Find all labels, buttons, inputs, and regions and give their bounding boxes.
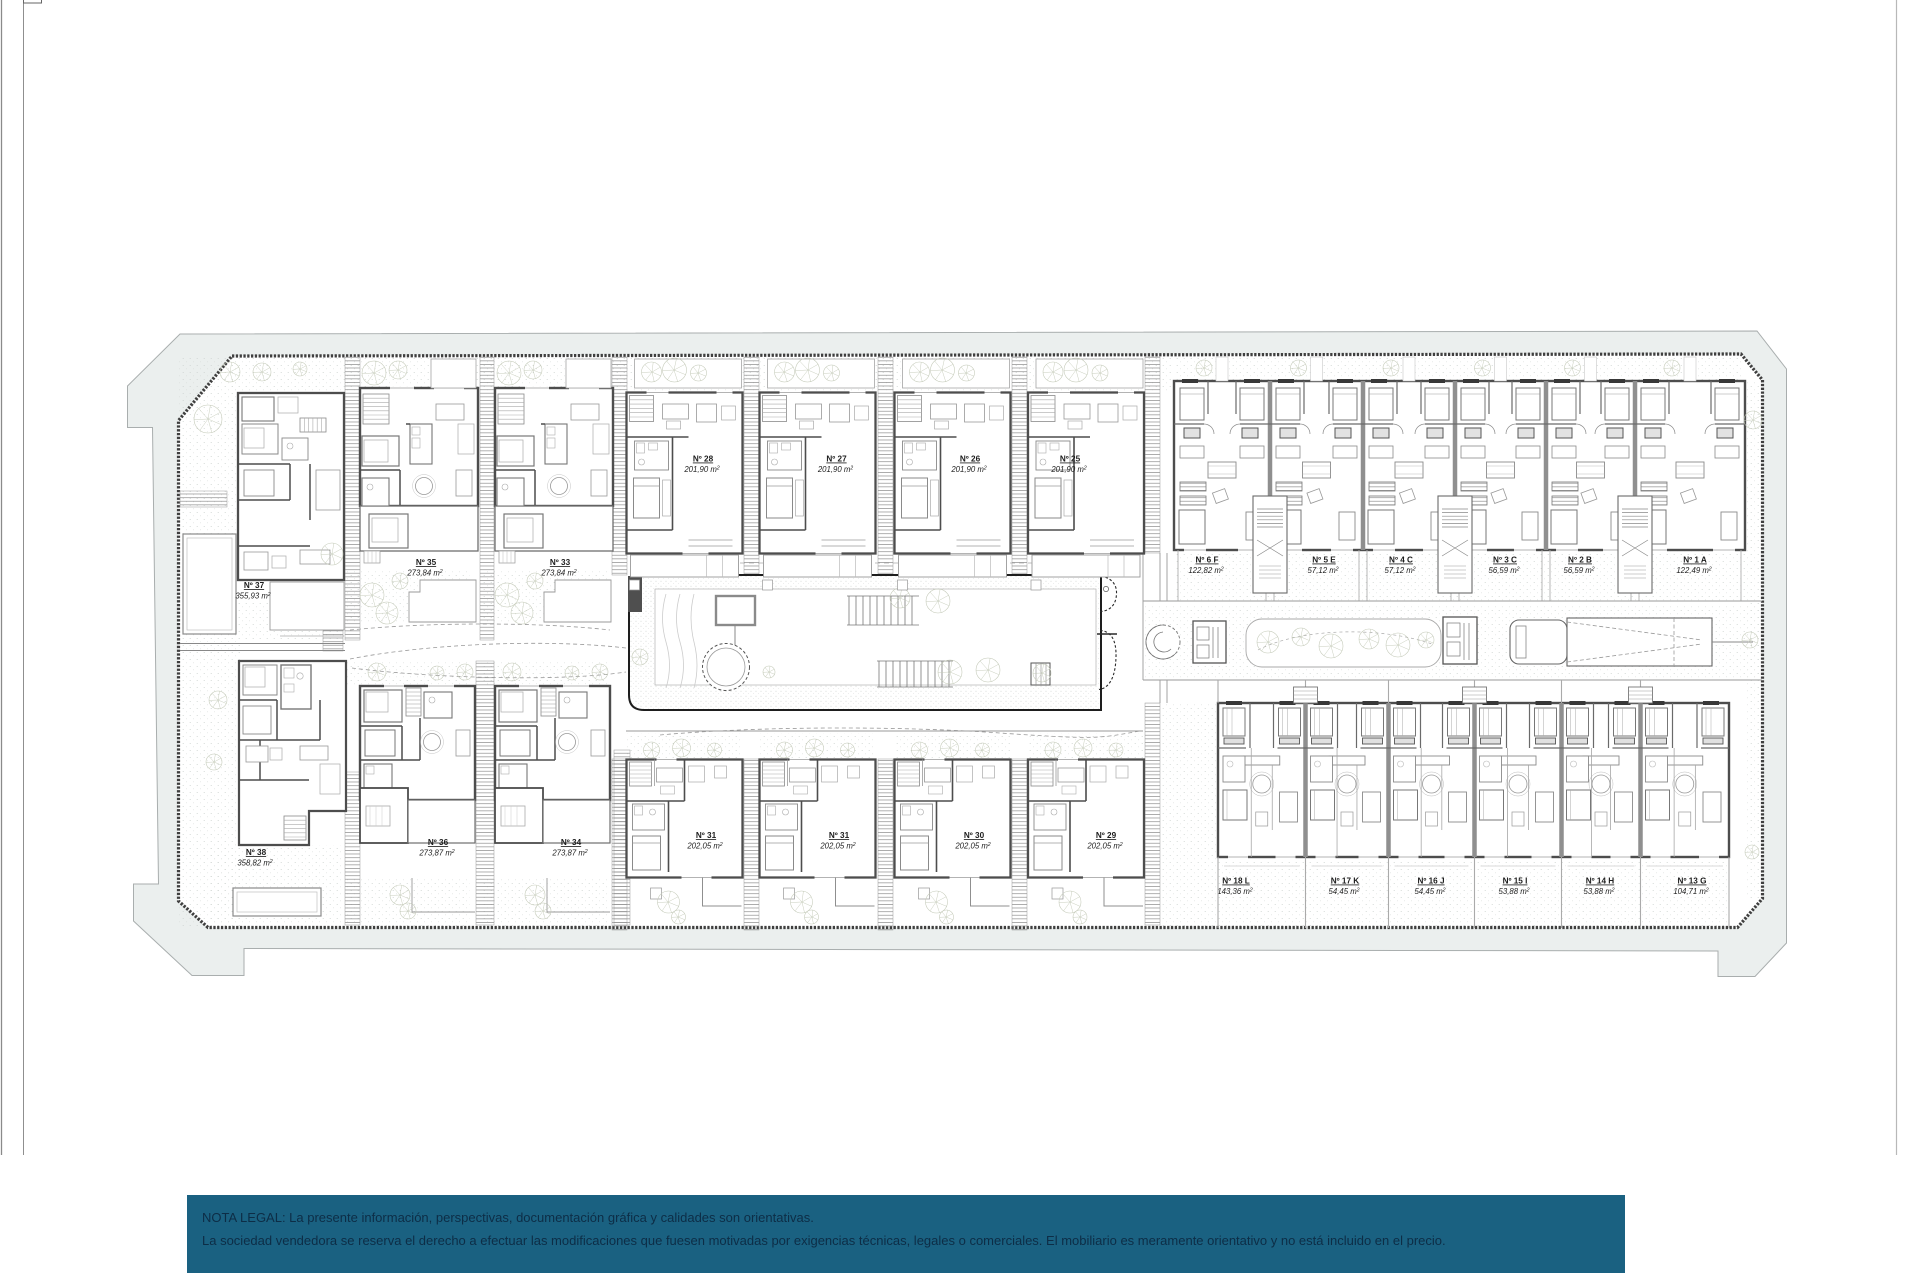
svg-text:202,05 m2: 202,05 m2 (1086, 842, 1123, 851)
svg-text:Nº 15 I: Nº 15 I (1503, 877, 1528, 886)
svg-text:Nº 38: Nº 38 (246, 848, 267, 857)
svg-text:273,87 m2: 273,87 m2 (551, 849, 588, 858)
svg-text:201,90 m2: 201,90 m2 (1050, 465, 1087, 474)
svg-text:273,87 m2: 273,87 m2 (418, 849, 455, 858)
svg-text:143,36 m2: 143,36 m2 (1217, 887, 1253, 896)
svg-text:Nº 37: Nº 37 (244, 581, 265, 590)
svg-text:355,93 m2: 355,93 m2 (235, 592, 271, 601)
svg-text:Nº 4 C: Nº 4 C (1389, 556, 1413, 565)
svg-text:Nº 30: Nº 30 (964, 831, 985, 840)
svg-text:Nº 33: Nº 33 (550, 558, 571, 567)
svg-text:56,59 m2: 56,59 m2 (1564, 566, 1595, 575)
svg-text:Nº 31: Nº 31 (696, 831, 717, 840)
svg-text:NOTA LEGAL: La presente inform: NOTA LEGAL: La presente información, per… (202, 1210, 814, 1225)
svg-text:201,90 m2: 201,90 m2 (950, 465, 987, 474)
svg-text:56,59 m2: 56,59 m2 (1489, 566, 1520, 575)
svg-text:201,90 m2: 201,90 m2 (817, 465, 854, 474)
svg-text:Nº 3 C: Nº 3 C (1493, 556, 1517, 565)
svg-text:Nº 1 A: Nº 1 A (1683, 556, 1707, 565)
svg-text:Nº 25: Nº 25 (1060, 455, 1081, 464)
svg-text:Nº 16 J: Nº 16 J (1417, 877, 1444, 886)
svg-text:Nº 13 G: Nº 13 G (1678, 877, 1707, 886)
svg-text:104,71 m2: 104,71 m2 (1673, 887, 1709, 896)
svg-text:Nº 34: Nº 34 (561, 838, 582, 847)
svg-text:Nº 27: Nº 27 (826, 455, 847, 464)
svg-text:358,82 m2: 358,82 m2 (237, 859, 273, 868)
svg-text:202,05 m2: 202,05 m2 (954, 842, 991, 851)
svg-text:Nº 29: Nº 29 (1096, 831, 1117, 840)
svg-text:Nº 18 L: Nº 18 L (1222, 877, 1250, 886)
svg-text:Nº 36: Nº 36 (428, 838, 449, 847)
svg-text:202,05 m2: 202,05 m2 (686, 842, 723, 851)
svg-text:53,88 m2: 53,88 m2 (1584, 887, 1615, 896)
svg-text:201,90 m2: 201,90 m2 (683, 465, 720, 474)
svg-text:Nº 2 B: Nº 2 B (1568, 556, 1592, 565)
svg-text:Nº 17 K: Nº 17 K (1331, 877, 1360, 886)
svg-text:Nº 6 F: Nº 6 F (1195, 556, 1218, 565)
svg-text:Nº 35: Nº 35 (416, 558, 437, 567)
svg-text:122,49 m2: 122,49 m2 (1676, 566, 1712, 575)
svg-text:Nº 31: Nº 31 (829, 831, 850, 840)
svg-text:Nº 28: Nº 28 (693, 455, 714, 464)
svg-text:Nº 5 E: Nº 5 E (1312, 556, 1336, 565)
svg-text:202,05 m2: 202,05 m2 (819, 842, 856, 851)
svg-text:57,12 m2: 57,12 m2 (1385, 566, 1416, 575)
svg-text:Nº 26: Nº 26 (960, 455, 981, 464)
svg-text:54,45 m2: 54,45 m2 (1415, 887, 1446, 896)
svg-text:273,84 m2: 273,84 m2 (540, 569, 577, 578)
svg-text:57,12 m2: 57,12 m2 (1308, 566, 1339, 575)
svg-text:122,82 m2: 122,82 m2 (1188, 566, 1224, 575)
svg-text:273,84 m2: 273,84 m2 (406, 569, 443, 578)
svg-text:54,45 m2: 54,45 m2 (1329, 887, 1360, 896)
svg-text:La sociedad vendedora se reser: La sociedad vendedora se reserva el dere… (202, 1233, 1446, 1248)
svg-text:53,88 m2: 53,88 m2 (1499, 887, 1530, 896)
svg-text:Nº 14 H: Nº 14 H (1586, 877, 1615, 886)
